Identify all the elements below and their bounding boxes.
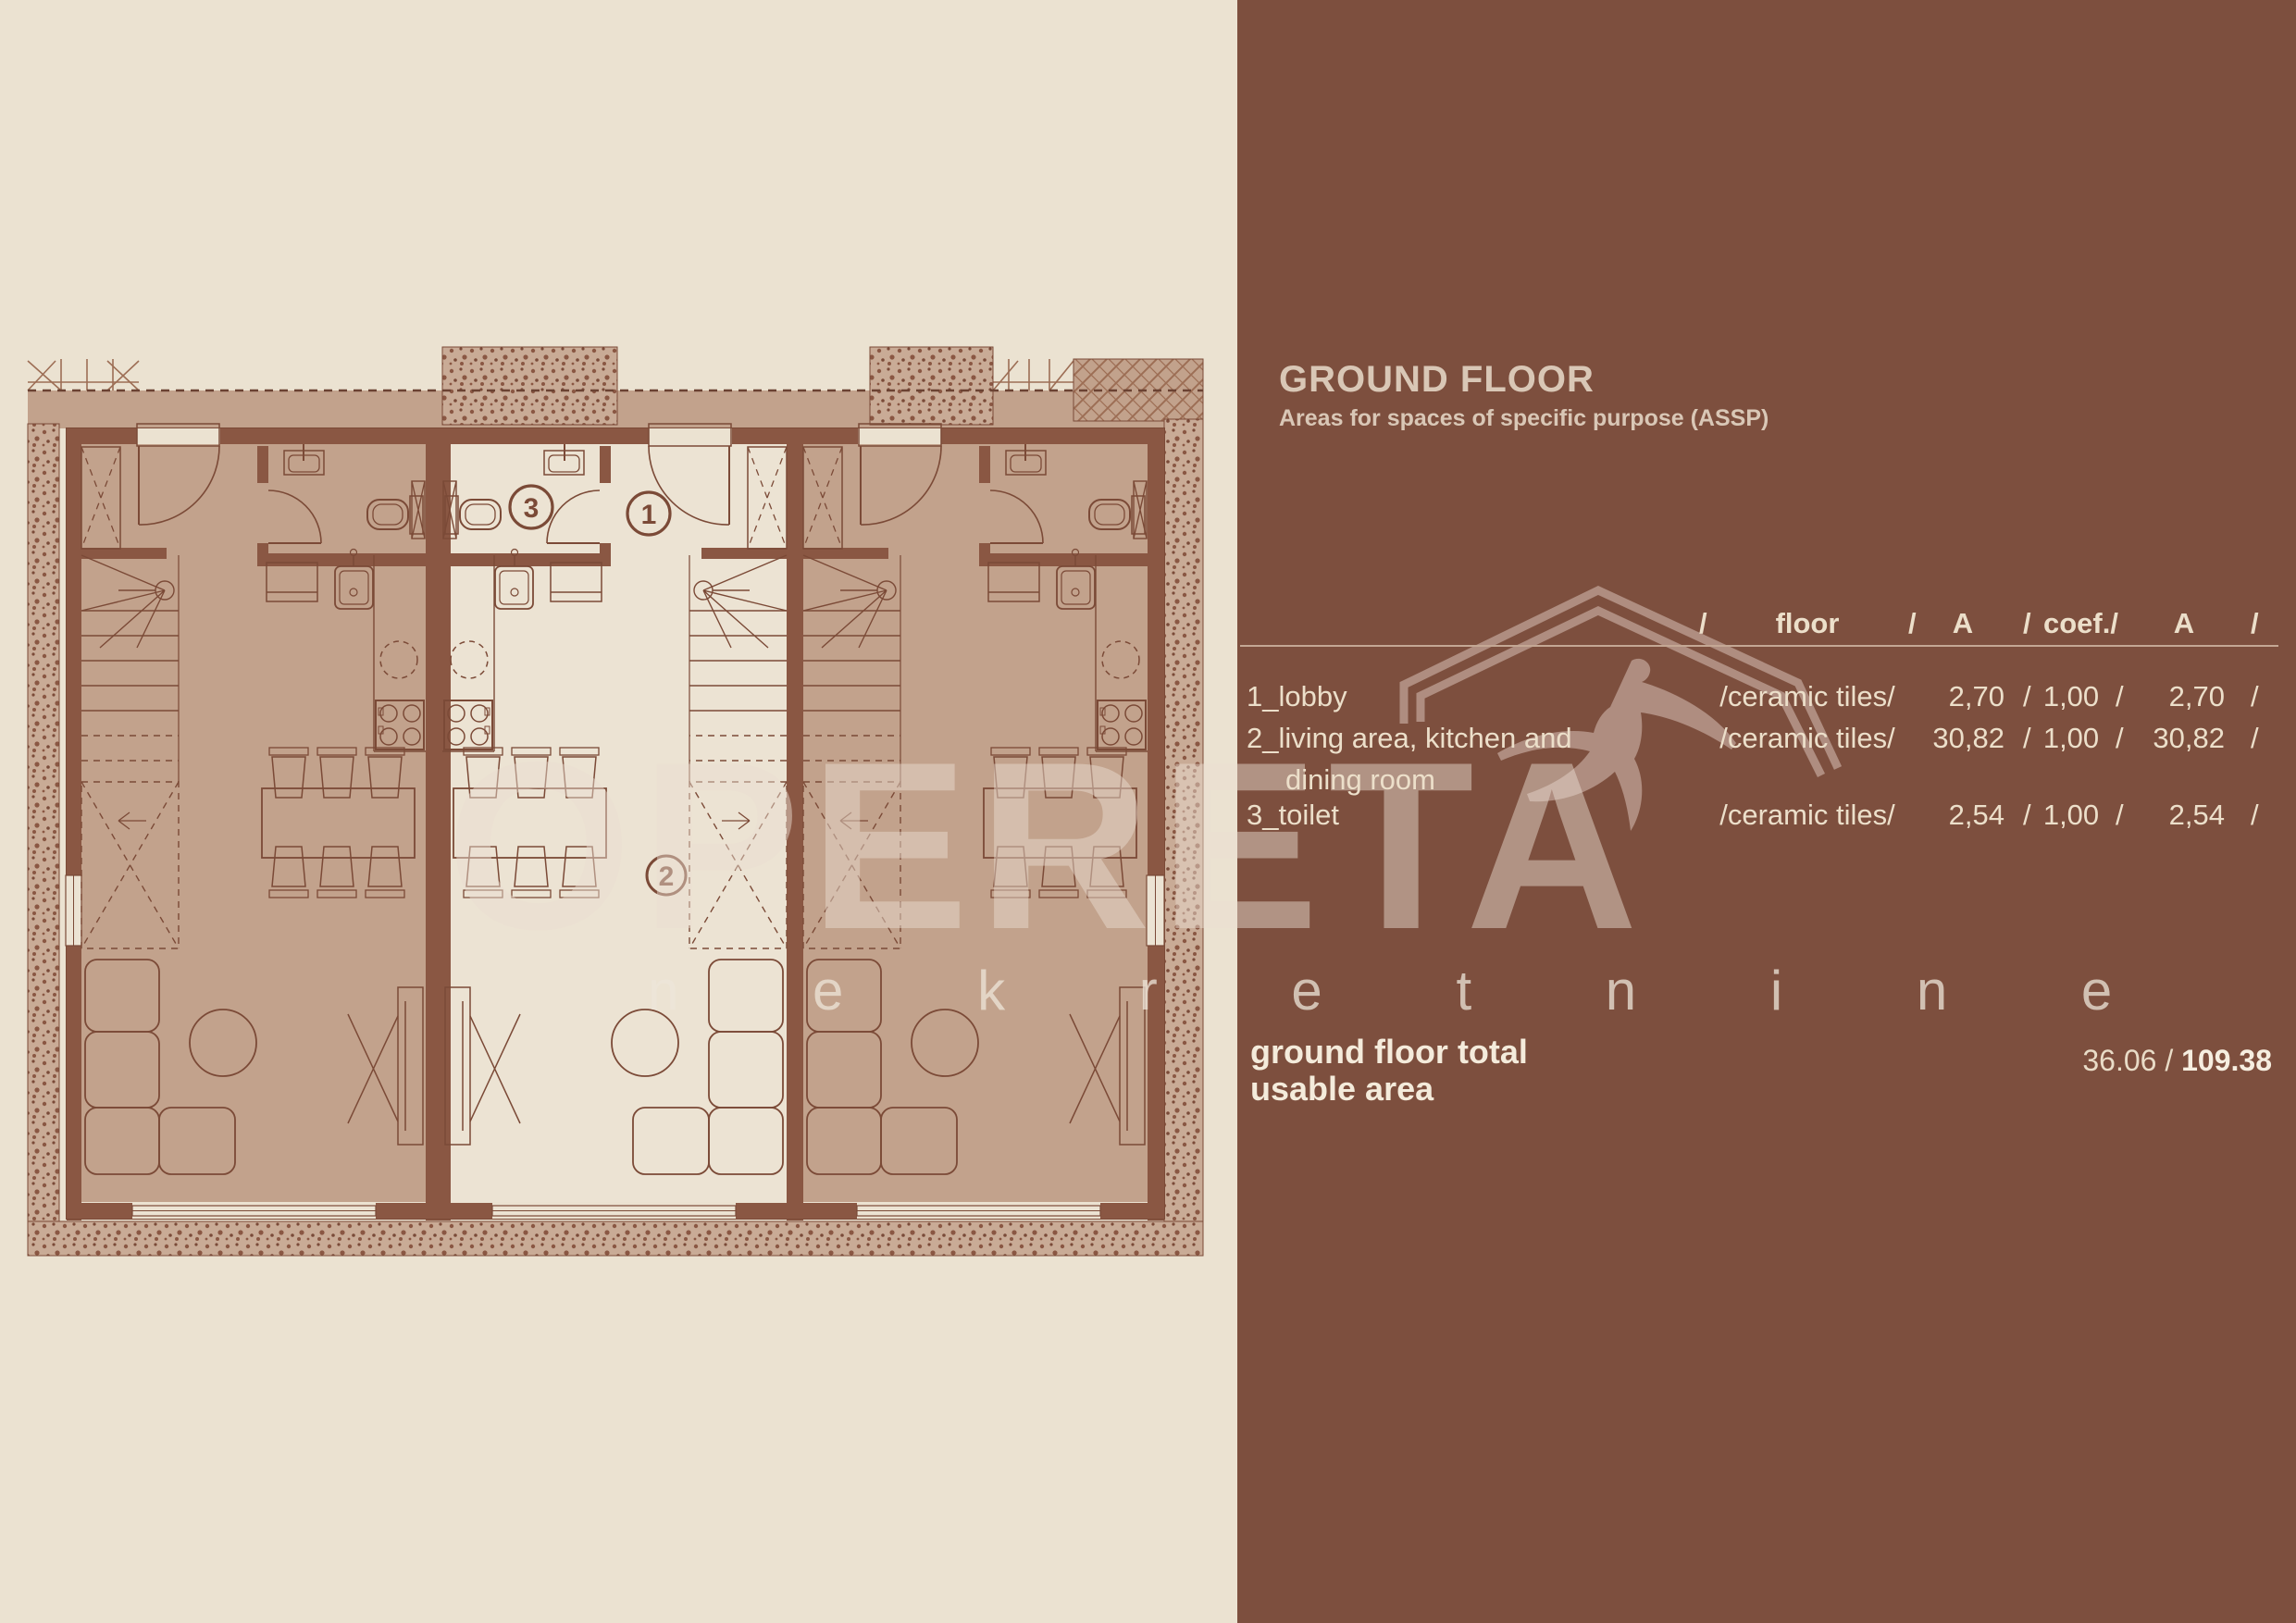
row-slash: / (2251, 721, 2259, 756)
row-name: 3_toilet (1247, 798, 1339, 833)
totals-label-line2: usable area (1250, 1070, 1433, 1108)
ground-hatch-right (1164, 419, 1203, 1256)
table-header-rule (1240, 645, 2278, 647)
row-floor: /ceramic tiles/ (1692, 798, 1923, 833)
row-slash: / (2023, 721, 2031, 756)
row-name: 1_lobby (1247, 679, 1347, 714)
porch-middle (442, 347, 617, 425)
row-area2: 30,82 (2140, 721, 2225, 756)
header-slash-2: / (1908, 606, 1917, 641)
header-area: A (1921, 606, 2004, 641)
svg-text:3: 3 (524, 493, 540, 524)
totals-value: 36.06 / 109.38 (1855, 1044, 2272, 1078)
row-area: 2,70 (1916, 679, 2004, 714)
totals-label: ground floor total usable area (1250, 1034, 1806, 1108)
totals-value-bold: 109.38 (2181, 1044, 2272, 1077)
header-floor: floor (1692, 606, 1923, 641)
row-area2: 2,70 (2140, 679, 2225, 714)
row-slash: / (2251, 798, 2259, 833)
row-area2: 2,54 (2140, 798, 2225, 833)
row-slash: / (2023, 798, 2031, 833)
row-coef: 1,00 (2042, 679, 2101, 714)
svg-text:1: 1 (641, 500, 657, 530)
header-area2: A (2143, 606, 2225, 641)
row-name-line2: dining room (1285, 762, 1435, 798)
ground-hatch-bottom (28, 1221, 1203, 1256)
row-coef: 1,00 (2042, 798, 2101, 833)
row-slash: / (2116, 798, 2124, 833)
row-area: 2,54 (1916, 798, 2004, 833)
header-coef: coef./ (2043, 606, 2118, 641)
header-slash-3: / (2023, 606, 2031, 641)
svg-text:2: 2 (659, 861, 675, 892)
row-floor: /ceramic tiles/ (1692, 679, 1923, 714)
row-slash: / (2116, 721, 2124, 756)
totals-label-line1: ground floor total (1250, 1033, 1528, 1071)
row-name: 2_living area, kitchen and (1247, 721, 1572, 756)
page-title: GROUND FLOOR (1279, 359, 1595, 401)
row-slash: / (2116, 679, 2124, 714)
page-subtitle: Areas for spaces of specific purpose (AS… (1279, 405, 1769, 432)
row-slash: / (2023, 679, 2031, 714)
ground-hatch-left (28, 424, 59, 1256)
header-slash-4: / (2251, 606, 2259, 641)
row-coef: 1,00 (2042, 721, 2101, 756)
porch-right (870, 347, 993, 425)
floor-plan: 3 1 2 (0, 0, 1237, 1623)
page: 3 1 2 OPERETA n e k r e t n i n e GROUND… (0, 0, 2296, 1623)
row-slash: / (2251, 679, 2259, 714)
row-area: 30,82 (1916, 721, 2004, 756)
totals-value-plain: 36.06 / (2082, 1044, 2181, 1077)
row-floor: /ceramic tiles/ (1692, 721, 1923, 756)
